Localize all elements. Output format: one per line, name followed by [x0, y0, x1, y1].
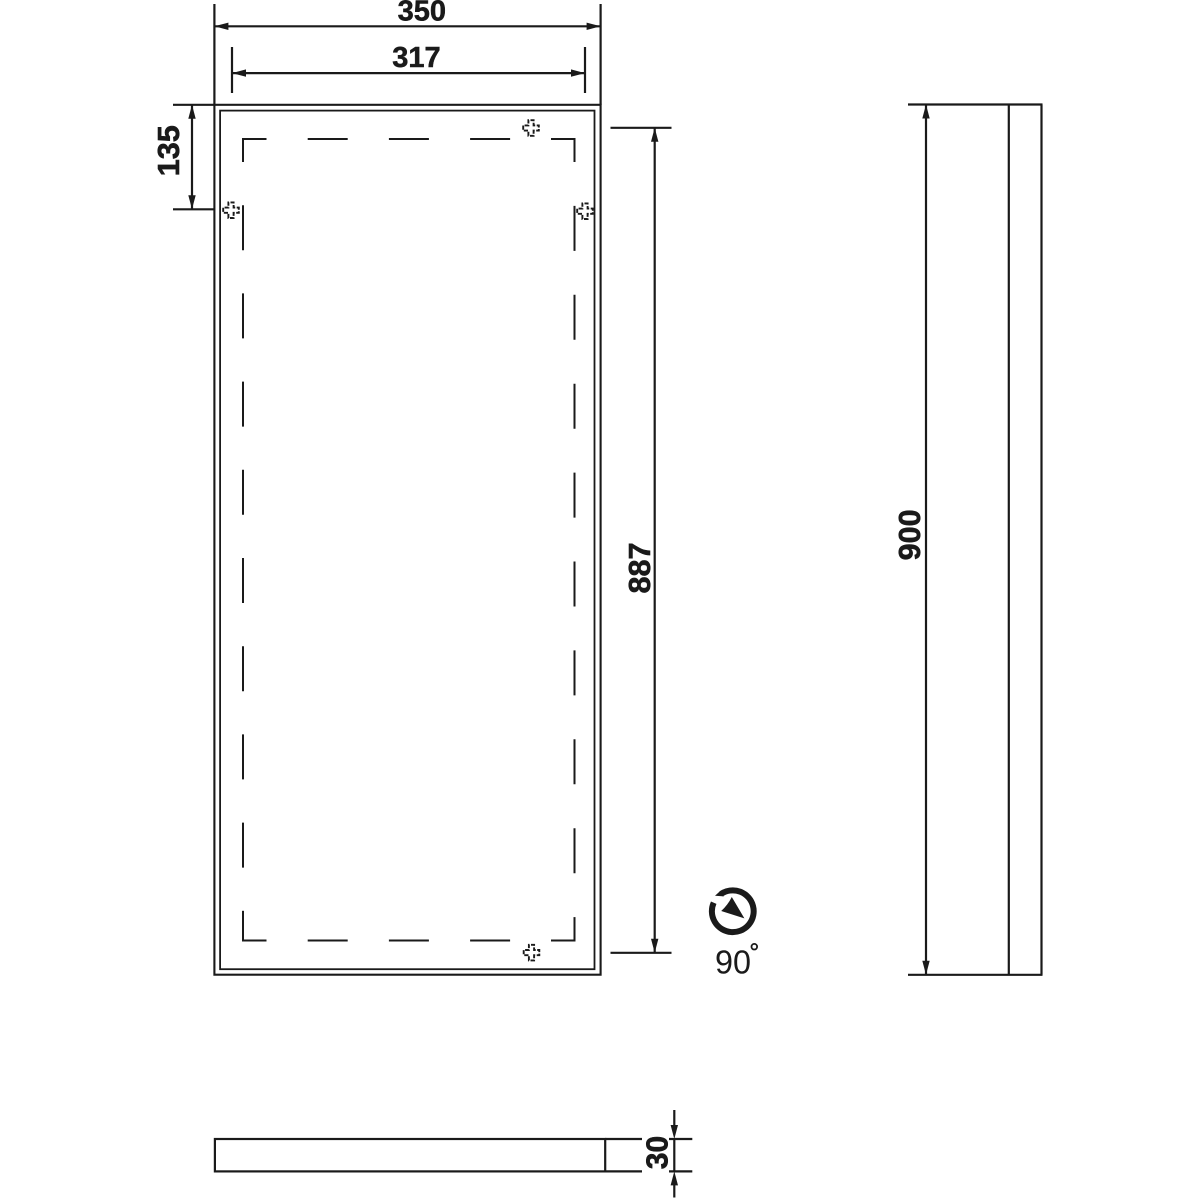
svg-text:350: 350: [398, 0, 446, 28]
svg-text:30: 30: [640, 1136, 674, 1170]
svg-text:900: 900: [893, 509, 927, 560]
svg-text:90: 90: [715, 944, 751, 981]
svg-text:887: 887: [623, 543, 657, 594]
svg-text:317: 317: [392, 42, 440, 74]
svg-text:135: 135: [152, 125, 186, 176]
